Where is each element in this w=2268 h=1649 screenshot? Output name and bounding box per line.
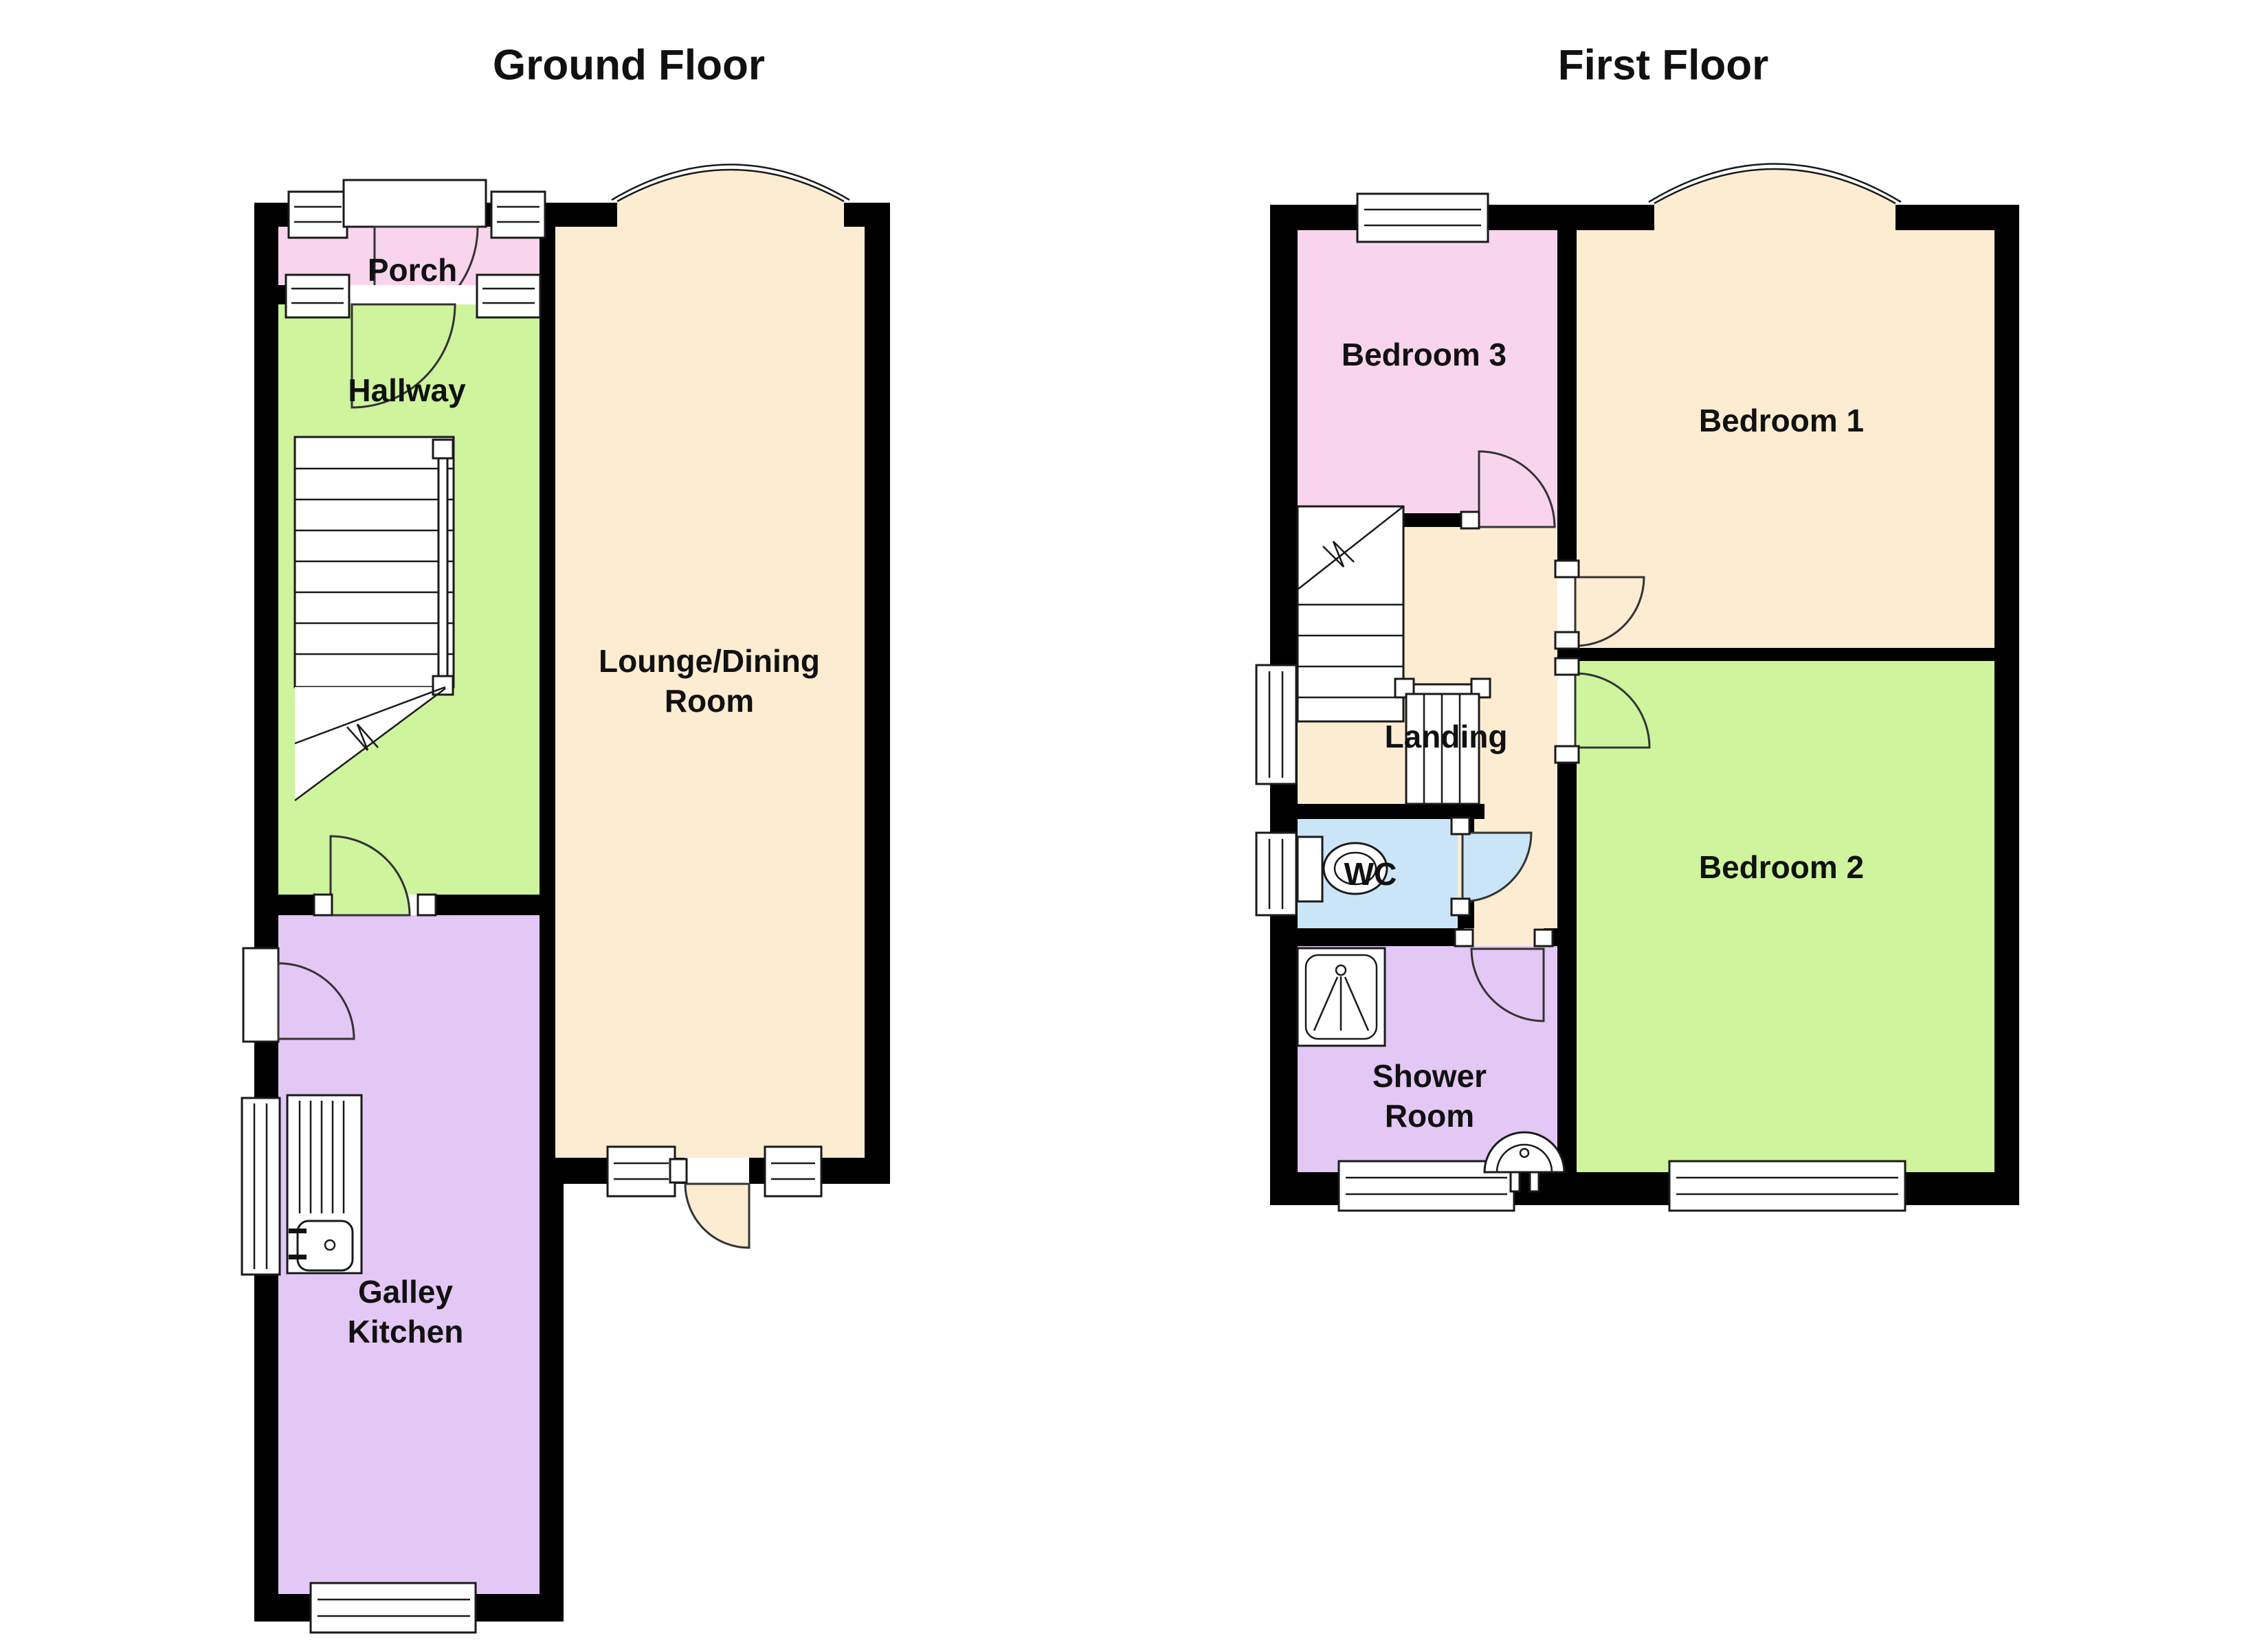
kitchen-bottom-window <box>311 1583 476 1633</box>
kitchen-sink <box>287 1095 362 1273</box>
bow-window-fill <box>1654 169 1895 237</box>
bedroom3-window <box>1357 194 1488 242</box>
porch-label: Porch <box>368 252 457 288</box>
kitchen-label-line2: Kitchen <box>348 1314 464 1349</box>
bedroom1-label: Bedroom 1 <box>1699 403 1864 438</box>
landing-label: Landing <box>1385 719 1508 754</box>
tap-icon <box>289 1255 307 1259</box>
bay-window-fill <box>617 170 844 234</box>
tap-icon <box>1530 1172 1539 1191</box>
ground-floor-plan: Porch Hallway Lounge/Dining Room Galley … <box>242 165 890 1633</box>
floorplan-canvas: Porch Hallway Lounge/Dining Room Galley … <box>0 0 2268 1649</box>
newel-post <box>433 676 453 695</box>
bedroom2-bottom-window <box>1669 1161 1905 1211</box>
shower-tray <box>1298 948 1385 1046</box>
bedroom2-label: Bedroom 2 <box>1699 849 1864 885</box>
stair-handrail <box>438 453 447 680</box>
lounge-label-line1: Lounge/Dining <box>599 643 820 679</box>
first-floor-plan: Bedroom 3 Bedroom 1 Landing WC Shower Ro… <box>1256 164 2019 1211</box>
first-floor-title: First Floor <box>1558 42 1769 89</box>
wc-left-window <box>1256 833 1296 915</box>
newel-post <box>433 440 453 458</box>
ground-floor-title: Ground Floor <box>493 42 765 89</box>
stair-handrail <box>1405 684 1480 694</box>
landing-left-window <box>1256 665 1296 784</box>
lounge-label-line2: Room <box>665 683 754 719</box>
kitchen-label-line1: Galley <box>358 1274 454 1310</box>
kitchen-left-window <box>242 1098 280 1275</box>
hallway-label: Hallway <box>348 372 466 408</box>
lounge-rear-door <box>670 1158 749 1248</box>
bedroom3-label: Bedroom 3 <box>1342 337 1507 372</box>
tap-icon <box>289 1229 307 1233</box>
tap-icon <box>1511 1172 1520 1191</box>
shower-label-line2: Room <box>1385 1098 1474 1134</box>
shower-label-line1: Shower <box>1372 1058 1487 1094</box>
wc-label: WC <box>1344 856 1397 892</box>
